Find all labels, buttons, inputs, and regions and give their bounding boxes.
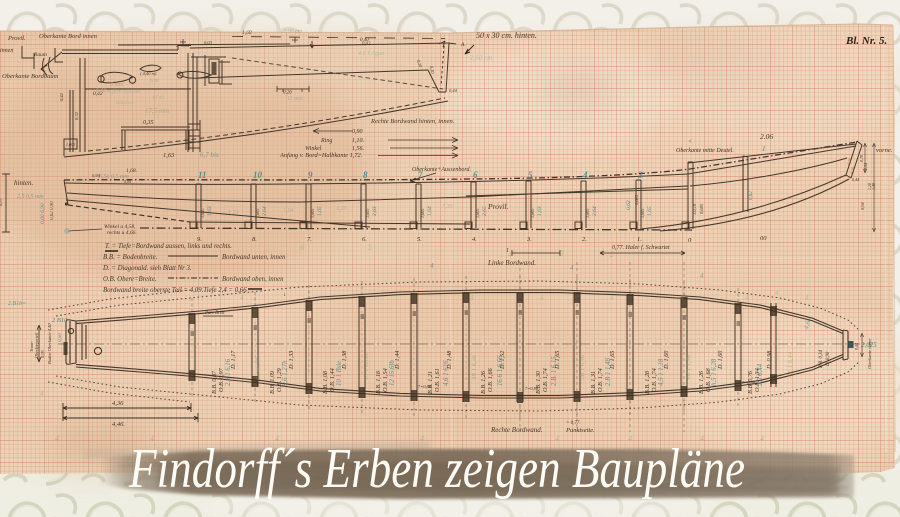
svg-text:2,60 cm: 2,60 cm [470,54,492,62]
svg-text:1,68: 1,68 [242,30,252,36]
svg-text:4: 4 [570,264,574,272]
svg-text:0,40: 0,40 [360,38,369,43]
svg-text:4,46.: 4,46. [112,421,125,428]
svg-text:Winkel u 4,58,: Winkel u 4,58, [104,223,136,230]
svg-text:Anfang v. Bord=Halbkante 1,72.: Anfang v. Bord=Halbkante 1,72. [279,152,362,159]
svg-text:Oberkante vorne: Oberkante vorne [867,339,872,369]
svg-text:4 2 1 Agua: 4 2 1 Agua [358,50,384,57]
svg-text:6: 6 [300,243,304,252]
svg-text:1,65: 1,65 [647,206,653,216]
svg-text:Bordwand oben, innen: Bordwand oben, innen [222,276,284,283]
svg-text:B.B. 1,31: B.B. 1,31 [590,371,597,394]
svg-text:2,64: 2,64 [591,206,598,216]
svg-text:4: 4 [430,262,434,270]
svg-text:10 1 Binke: 10 1 Binke [363,352,370,380]
svg-text:2,64: 2,64 [261,206,268,216]
svg-text:1: 1 [762,145,766,153]
svg-text:D. = Diagonald. sieh Blatt Nr: D. = Diagonald. sieh Blatt Nr 3. [102,265,192,272]
svg-text:4: 4 [805,294,809,302]
svg-text:12 15,6fb: 12 15,6fb [389,360,396,386]
svg-text:17 41: 17 41 [152,94,165,101]
svg-text:D. 1,60: D. 1,60 [717,350,724,370]
svg-text:4B 1 6,46: 4B 1 6,46 [471,354,478,380]
svg-text:B.B. 0,87: B.B. 0,87 [211,370,218,394]
svg-text:B.B. 0,34: B.B. 0,34 [819,350,824,368]
svg-text:4: 4 [700,272,704,280]
svg-text:B.B. 1,09: B.B. 1,09 [269,371,276,394]
svg-text:Oberkante+Aussenbord.: Oberkante+Aussenbord. [412,167,471,173]
svg-text:Punktseite.: Punktseite. [565,427,595,434]
svg-text:1,64: 1,64 [426,206,433,216]
svg-text:<: < [688,139,692,145]
svg-text:1,23: 1,23 [228,210,239,216]
svg-text:6.: 6. [362,236,367,243]
svg-text:2.B 1 1,48: 2.B 1 1,48 [605,357,612,386]
svg-text:vorne.: vorne. [876,147,893,154]
svg-text:11: 11 [198,170,207,180]
svg-text:4: 4 [582,170,588,180]
svg-text:B.B. 1,08: B.B. 1,08 [322,370,329,394]
svg-text:2 B10: 2 B10 [52,317,68,324]
svg-text:1,63: 1,63 [537,206,543,216]
svg-text:8: 8 [363,170,368,180]
svg-text:2.B1b=: 2.B1b= [8,301,26,307]
svg-text:4: 4 [745,294,749,302]
svg-text:O.B. 1,74: O.B. 1,74 [597,368,604,392]
svg-text:1,10.: 1,10. [352,138,364,144]
svg-text:6 mm: 6 mm [110,82,124,88]
svg-text:2.06: 2.06 [760,132,773,141]
svg-text:B.B. 1,18: B.B. 1,18 [375,370,382,394]
svg-text:Oberkante Bordbaum: Oberkante Bordbaum [2,73,59,80]
svg-text:7.: 7. [307,236,312,243]
svg-text:4: 4 [680,294,684,302]
svg-text:4: 4 [55,434,59,443]
svg-text:2 fach Spanner: 2 fach Spanner [108,88,142,95]
svg-text:5.: 5. [417,236,422,243]
svg-text:B.B. = Bodenbreite.: B.B. = Bodenbreite. [103,254,158,261]
svg-text:O.B. 1,61: O.B. 1,61 [434,368,441,392]
svg-text:0,60 6,90: 0,60 6,90 [40,203,46,224]
svg-text:4: 4 [470,294,474,302]
svg-text:D. 1,33: D. 1,33 [288,351,295,370]
svg-text:2,5 6,44: 2,5 6,44 [757,363,764,386]
svg-text:O.B. 1,54: O.B. 1,54 [382,368,389,392]
svg-text:4,6 1 616: 4,6 1 616 [443,360,450,386]
svg-text:Rechte Bordwand hinten, innen.: Rechte Bordwand hinten, innen. [370,118,455,125]
svg-text:11 mm: 11 mm [287,96,303,102]
svg-text:innen: innen [0,48,13,54]
svg-text:0,26: 0,26 [283,91,292,96]
svg-text:B.B. 1,28: B.B. 1,28 [644,370,651,394]
svg-text:2: 2 [610,250,614,259]
svg-text:00: 00 [760,235,767,242]
svg-text:0,62: 0,62 [626,200,632,210]
svg-text:5: 5 [528,170,533,180]
svg-text:10: 10 [253,170,263,180]
svg-text:1,04: 1,04 [283,207,294,214]
svg-text:4B 1 1,48: 4B 1 1,48 [685,354,692,380]
svg-text:4: 4 [775,289,779,297]
svg-text:Oberkörperteil: Oberkörperteil [34,332,39,358]
svg-text:2,9 1 6,16: 2,9 1 6,16 [225,358,232,386]
svg-text:Oberkante Bord innen: Oberkante Bord innen [39,33,97,40]
svg-text:Ring: Ring [320,138,332,144]
svg-text:4: 4 [40,390,44,398]
svg-text:Raum: Raum [33,52,47,58]
svg-text:4: 4 [508,250,512,259]
svg-text:rechts u 4,66.: rechts u 4,66. [107,229,137,236]
svg-text:0,77. Haler f. Schwartet: 0,77. Haler f. Schwartet [612,244,670,251]
svg-text:hinten.: hinten. [14,179,33,187]
svg-text:4,36: 4,36 [112,400,124,407]
svg-text:17,5 mm: 17,5 mm [145,107,169,115]
svg-text:1,65: 1,65 [317,206,323,216]
svg-text:O.B. 1,44: O.B. 1,44 [329,368,336,392]
svg-text:0,50: 0,50 [58,333,63,342]
svg-text:6,7 bis: 6,7 bis [200,151,219,159]
svg-text:Findorff´s Erben zeigen Bauplä: Findorff´s Erben zeigen Baupläne [128,438,745,500]
svg-text:Bordwand breite oberste Teil =: Bordwand breite oberste Teil = 4,09.Tief… [103,287,247,294]
svg-text:B.B. 1,21: B.B. 1,21 [427,371,434,394]
svg-text:O.B. 0,97: O.B. 0,97 [218,367,225,392]
svg-text:↓: ↓ [283,292,286,298]
svg-text:2B 1 6,46: 2B 1 6,46 [579,354,586,380]
svg-text:0,90: 0,90 [352,129,363,135]
svg-text:6,4 6,27h: 6,4 6,27h [255,356,262,380]
svg-text:0,62: 0,62 [749,191,754,200]
svg-text:D. 0,98: D. 0,98 [826,351,831,367]
svg-text:6 m: 6 m [150,78,160,84]
svg-text:B.B. 1,26: B.B. 1,26 [698,370,705,394]
svg-text:B.B. 1,26: B.B. 1,26 [480,370,487,394]
svg-text:3: 3 [559,249,564,258]
svg-text:T. = Tiefe=Bordwand aussen, li: T. = Tiefe=Bordwand aussen, links und re… [105,243,232,250]
svg-text:3: 3 [637,170,643,180]
svg-text:3.: 3. [526,236,532,243]
svg-text:Bl. Nr. 5.: Bl. Nr. 5. [845,35,887,47]
svg-text:6: 6 [473,170,478,180]
svg-text:10 1 Bsie: 10 1 Bsie [336,361,343,386]
svg-text:9,6 1,27h: 9,6 1,27h [282,360,289,386]
svg-text:9: 9 [308,170,313,180]
svg-text:0,62 0,90: 0,62 0,90 [50,201,55,220]
svg-text:4.: 4. [472,236,477,243]
svg-text:1,18: 1,18 [497,202,508,208]
svg-text:2,5 0,5 mm: 2,5 0,5 mm [17,194,44,200]
svg-text:Pan. Breit: Pan. Breit [204,311,225,316]
svg-text:h,5 1 6,28: h,5 1 6,28 [711,358,718,386]
svg-text:D. 0,98: D. 0,98 [766,350,773,370]
svg-text:Provil.: Provil. [7,35,26,42]
svg-text:4,5 1 6,44: 4,5 1 6,44 [787,351,794,378]
svg-text:1.: 1. [637,236,642,243]
svg-text:16 6 1 6,66: 16 6 1 6,66 [497,355,504,386]
svg-text:A.: A. [460,42,466,48]
svg-text:= 0,77.: = 0,77. [566,421,581,426]
svg-text:9.: 9. [197,236,202,243]
svg-text:7,35: 7,35 [442,204,453,210]
svg-text:O.B. 1,66: O.B. 1,66 [487,367,494,392]
svg-text:4: 4 [760,434,764,443]
svg-text:2.: 2. [582,236,587,243]
svg-text:1,23: 1,23 [336,206,347,212]
svg-text:O.B. Obere=Breite.: O.B. Obere=Breite. [103,276,157,283]
svg-text:0,35: 0,35 [143,120,154,126]
svg-text:Oberkante mitte Deutel.: Oberkante mitte Deutel. [676,148,734,154]
svg-text:4: 4 [540,294,544,302]
svg-text:O.B. 1,74: O.B. 1,74 [542,368,549,392]
svg-text:5: 5 [368,243,372,252]
svg-text:Räumen: Räumen [115,100,134,106]
svg-text:Linke Bordwand.: Linke Bordwand. [487,259,536,267]
svg-text:1,63: 1,63 [207,206,213,216]
svg-text:4,5 1 1,18: 4,5 1 1,18 [658,358,665,386]
svg-text:O.B. 1,74: O.B. 1,74 [651,368,658,392]
svg-text:1,63: 1,63 [163,152,175,159]
svg-text:2.B. 1 6,15: 2.B. 1 6,15 [551,356,558,386]
svg-text:8.: 8. [252,236,257,243]
svg-text:4: 4 [240,294,244,302]
svg-text:4: 4 [610,294,614,302]
svg-text:Rechte Bordwand.: Rechte Bordwand. [490,426,543,434]
svg-text:2,63: 2,63 [372,206,378,216]
svg-text:Bordwand unten, innen: Bordwand unten, innen [222,254,286,261]
